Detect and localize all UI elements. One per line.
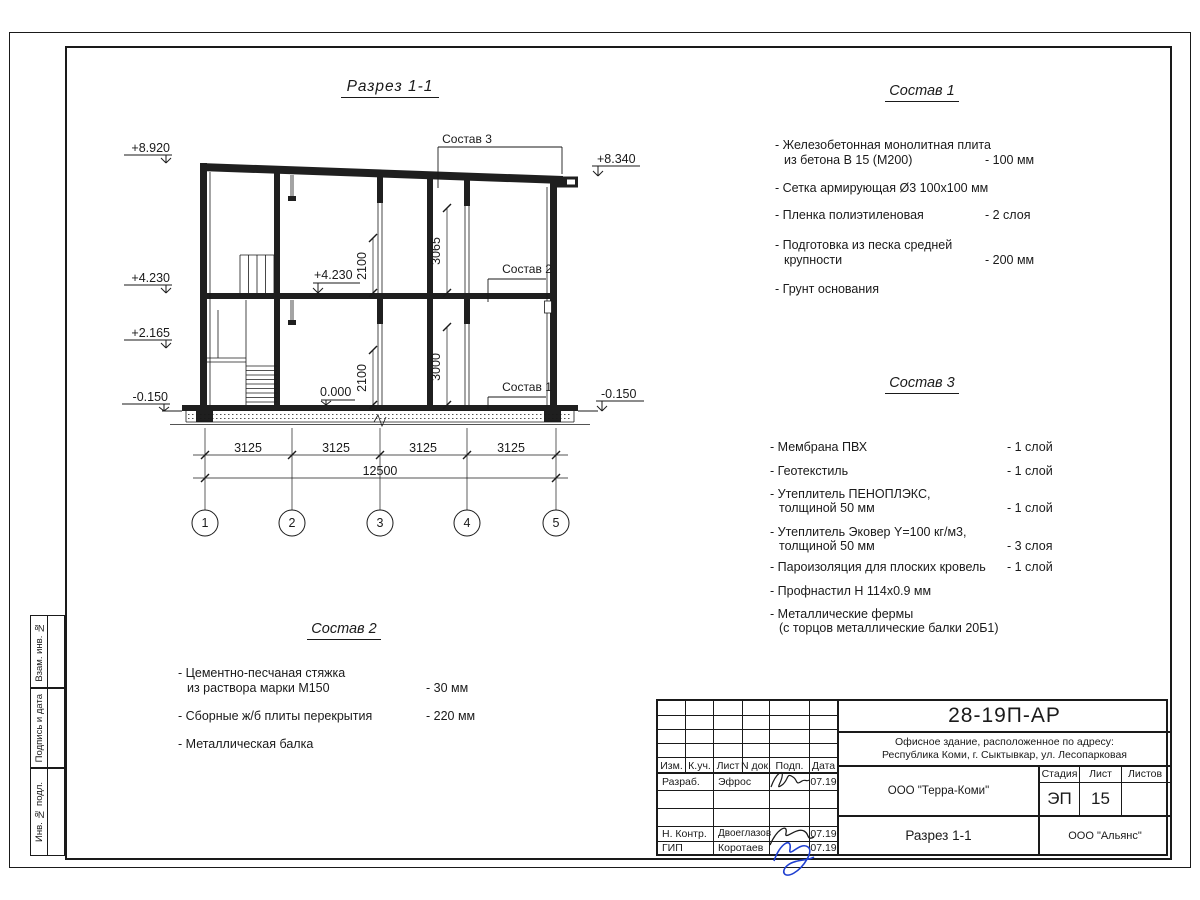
tb-stage-value: ЭП: [1040, 783, 1079, 815]
sidebox-label: Инв. № подл.: [31, 769, 48, 855]
title-block: Изм. К.уч. Лист N док. Подп. Дата Разраб…: [656, 699, 1168, 856]
drawing-sheet: Разрез 1-1 +8.920 +4.230 +2.165 -0.150 +…: [0, 0, 1200, 900]
sidebox-label: Взам. инв. №: [31, 616, 48, 687]
tb-doc-code: 28-19П-АР: [839, 701, 1170, 731]
tb-sheets-label: Листов: [1122, 765, 1168, 782]
tb-drawing-name: Разрез 1-1: [839, 817, 1038, 854]
signature-developer: [771, 772, 809, 787]
tb-role-developer: Разраб.: [658, 774, 713, 790]
tb-name-developer: Эфрос: [714, 774, 769, 790]
tb-address-1: Офисное здание, расположенное по адресу:: [839, 735, 1170, 748]
tb-role-gip: ГИП: [658, 841, 713, 854]
sidebox-label: Подпись и дата: [31, 689, 48, 767]
tb-col-kuch: К.уч.: [686, 759, 713, 772]
tb-sheet-value: 15: [1080, 783, 1121, 815]
tb-sheet-label: Лист: [1080, 765, 1121, 782]
sidebox-podpis: Подпись и дата: [30, 688, 65, 768]
tb-name-ncontrol: Двоеглазов: [714, 826, 769, 841]
tb-org-contractor: ООО "Альянс": [1040, 817, 1170, 854]
sidebox-inv: Инв. № подл.: [30, 768, 65, 856]
signature-ncontrol: [770, 828, 814, 845]
signatures: [768, 769, 828, 889]
tb-name-gip: Коротаев: [714, 841, 769, 854]
tb-role-ncontrol: Н. Контр.: [658, 826, 713, 841]
tb-col-ndok: N док.: [743, 759, 769, 772]
tb-col-list: Лист: [714, 759, 742, 772]
tb-address-2: Республика Коми, г. Сыктывкар, ул. Лесоп…: [839, 748, 1170, 761]
tb-col-izm: Изм.: [658, 759, 685, 772]
sidebox-vzam: Взам. инв. №: [30, 615, 65, 688]
signature-gip: [774, 843, 814, 875]
tb-stage-label: Стадия: [1040, 765, 1079, 782]
tb-org-customer: ООО "Терра-Коми": [839, 767, 1038, 815]
tb-sheets-value: [1122, 783, 1168, 815]
